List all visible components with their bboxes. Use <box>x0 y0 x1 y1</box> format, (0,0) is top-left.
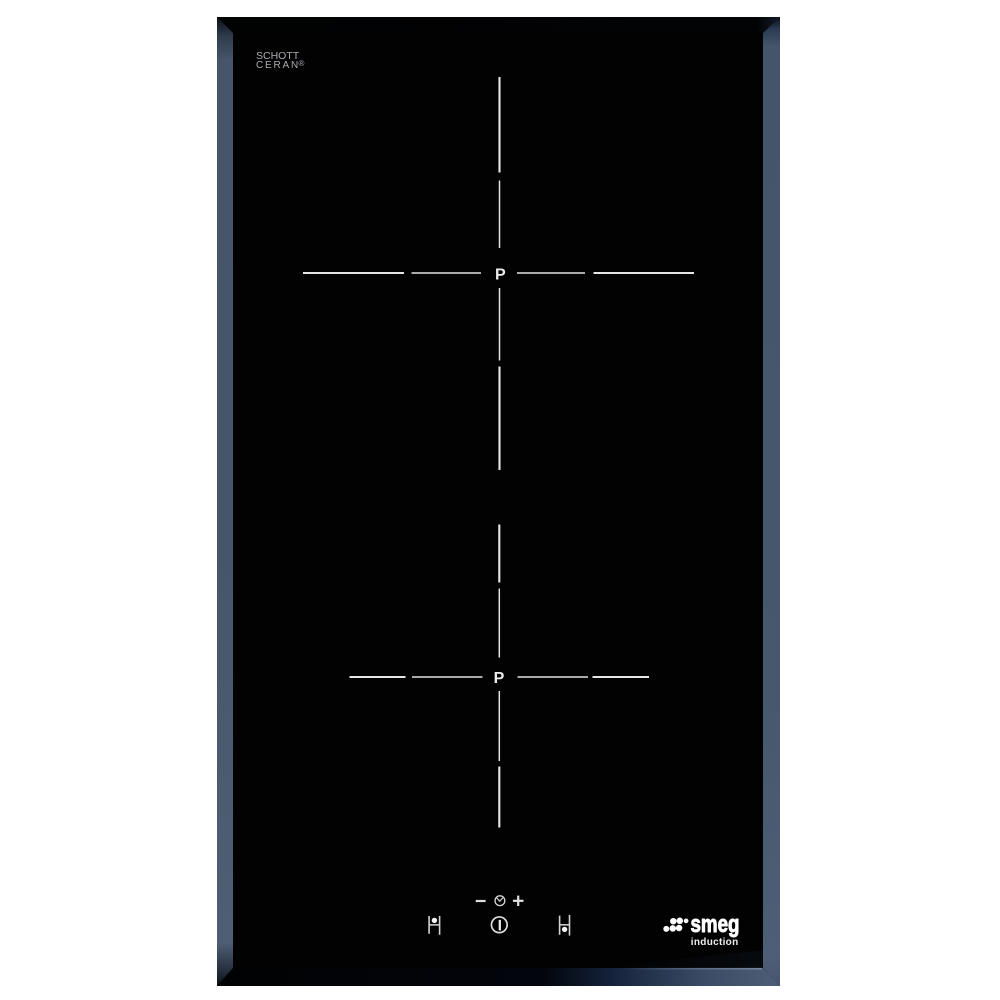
svg-text:induction: induction <box>691 937 739 948</box>
svg-text:®: ® <box>299 59 305 68</box>
svg-text:smeg: smeg <box>691 910 740 937</box>
svg-text:P: P <box>494 670 505 687</box>
svg-text:CERAN: CERAN <box>256 60 300 71</box>
svg-text:P: P <box>495 266 506 283</box>
